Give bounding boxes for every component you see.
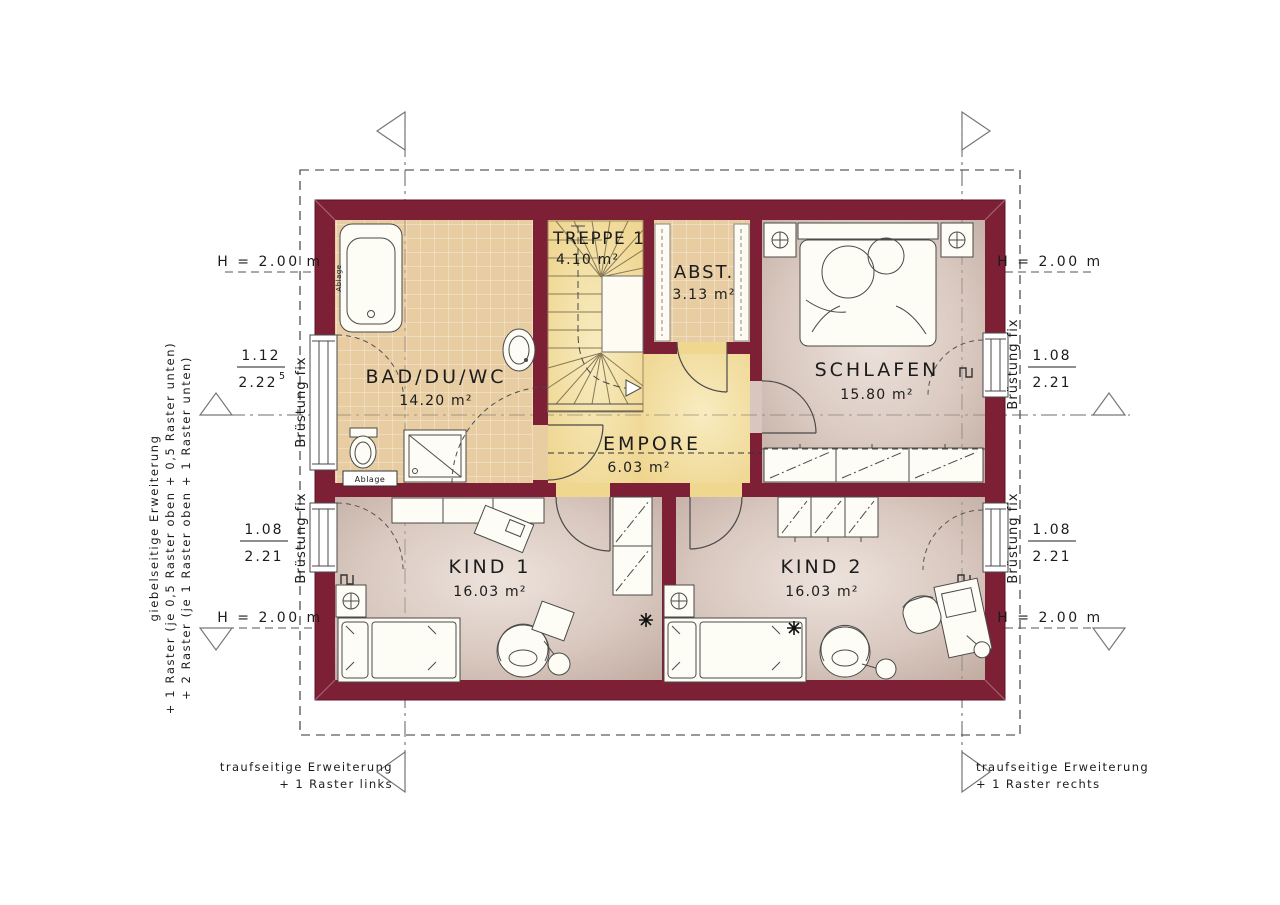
parapet-label-right-top: Brüstung fix	[1006, 318, 1021, 409]
ablage-label-tub: Ablage	[335, 264, 343, 291]
room-empore-area: 6.03 m²	[607, 460, 670, 476]
wardrobe-kind1	[613, 497, 652, 595]
room-kind1-area: 16.03 m²	[453, 584, 526, 600]
eave-annotation-left: traufseitige Erweiterung + 1 Raster link…	[220, 760, 393, 791]
fraction-left-top-num: 1.12	[241, 348, 280, 364]
eave-right-line2: + 1 Raster rechts	[976, 777, 1100, 791]
floor-plan-svg: BAD/DU/WC 14.20 m² TREPPE 1 4.10 m² ABST…	[0, 0, 1280, 905]
wall-abst-schlafen	[750, 220, 762, 381]
fraction-right-bottom-num: 1.08	[1032, 522, 1071, 538]
fraction-left-top-den: 2.22	[238, 375, 277, 391]
fraction-right-bottom: 1.08 2.21	[1028, 522, 1076, 565]
fraction-left-top: 1.12 2.22 5	[237, 348, 285, 391]
threshold-bad	[533, 425, 548, 480]
triangle-marker-mid-right	[1093, 393, 1125, 415]
parapet-label-left-top: Brüstung fix	[294, 356, 309, 447]
triangle-marker-bottom-left-h	[200, 628, 232, 650]
triangle-marker-mid-left	[200, 393, 232, 415]
bed-kind1	[338, 618, 460, 682]
triangle-marker-top-right	[962, 112, 990, 150]
wall-abst-bottom-right	[727, 342, 762, 354]
threshold-kind1	[556, 483, 610, 497]
gable-annotation-line1: + 1 Raster (je 0,5 Raster oben + 0,5 Ras…	[163, 342, 177, 714]
threshold-schlafen	[750, 381, 762, 433]
eave-left-line2: + 1 Raster links	[279, 777, 393, 791]
gable-annotation: giebelseitige Erweiterung + 1 Raster (je…	[147, 342, 193, 714]
plant-kind1	[639, 613, 653, 627]
threshold-kind2	[690, 483, 742, 497]
room-schlafen-label: SCHLAFEN	[815, 359, 940, 381]
fraction-left-top-sup: 5	[279, 371, 285, 382]
window-kind1	[310, 503, 337, 572]
window-schlafen	[983, 333, 1008, 397]
bed-double	[798, 223, 938, 346]
wall-south-3	[742, 483, 985, 497]
eave-right-line1: traufseitige Erweiterung	[976, 760, 1149, 774]
fraction-right-top-den: 2.21	[1032, 375, 1071, 391]
threshold-abst	[677, 342, 727, 354]
height-label-left-bottom: H = 2.00 m	[217, 610, 322, 626]
bed-kind2	[664, 618, 806, 682]
ablage-label-shelf: Ablage	[355, 475, 386, 484]
wardrobe-kind2	[778, 497, 878, 542]
fraction-right-top-num: 1.08	[1032, 348, 1071, 364]
bathtub	[340, 224, 402, 332]
wall-abst-bottom-left	[643, 342, 677, 354]
fraction-left-bottom: 1.08 2.21	[240, 522, 288, 565]
height-label-left-top: H = 2.00 m	[217, 254, 322, 270]
parapet-label-left-bottom: Brüstung fix	[294, 492, 309, 583]
window-bad	[310, 335, 337, 470]
nightstand-left	[764, 223, 796, 257]
room-bad-label: BAD/DU/WC	[365, 366, 506, 388]
nightstand-right	[941, 223, 973, 257]
plant-kind2	[787, 621, 801, 635]
room-abst-label: ABST.	[674, 262, 734, 283]
fraction-left-bottom-num: 1.08	[244, 522, 283, 538]
room-kind2-label: KIND 2	[780, 556, 863, 578]
room-treppe-label: TREPPE 1	[552, 229, 645, 249]
triangle-marker-bottom-right-h	[1093, 628, 1125, 650]
wall-bad-treppe	[533, 220, 548, 425]
height-label-right-top: H = 2.00 m	[997, 254, 1102, 270]
window-kind2	[983, 503, 1008, 572]
gable-annotation-line2: + 2 Raster (je 1 Raster oben + 1 Raster …	[179, 356, 193, 700]
parapet-label-right-bottom: Brüstung fix	[1006, 492, 1021, 583]
fraction-right-bottom-den: 2.21	[1032, 549, 1071, 565]
wall-south-2	[610, 483, 690, 497]
height-label-right-bottom: H = 2.00 m	[997, 610, 1102, 626]
toilet	[350, 428, 377, 468]
nightstand-kind1	[336, 585, 366, 617]
washbasin	[503, 329, 535, 371]
fraction-left-bottom-den: 2.21	[244, 549, 283, 565]
room-kind1-label: KIND 1	[448, 556, 531, 578]
room-abst-area: 3.13 m²	[672, 287, 735, 303]
room-kind2-area: 16.03 m²	[785, 584, 858, 600]
room-empore-label: EMPORE	[603, 433, 701, 455]
nightstand-kind2	[664, 585, 694, 617]
gable-annotation-title: giebelseitige Erweiterung	[147, 435, 161, 622]
eave-annotation-right: traufseitige Erweiterung + 1 Raster rech…	[976, 760, 1149, 791]
room-schlafen-area: 15.80 m²	[840, 387, 913, 403]
wall-schlafen-lower	[750, 433, 762, 483]
eave-left-line1: traufseitige Erweiterung	[220, 760, 393, 774]
room-bad-area: 14.20 m²	[399, 393, 472, 409]
triangle-marker-top-left	[377, 112, 405, 150]
room-treppe-area: 4.10 m²	[556, 252, 619, 268]
wardrobe-schlafen	[764, 444, 983, 482]
shower	[404, 430, 466, 482]
fraction-right-top: 1.08 2.21	[1028, 348, 1076, 391]
stair-landing	[602, 276, 643, 352]
